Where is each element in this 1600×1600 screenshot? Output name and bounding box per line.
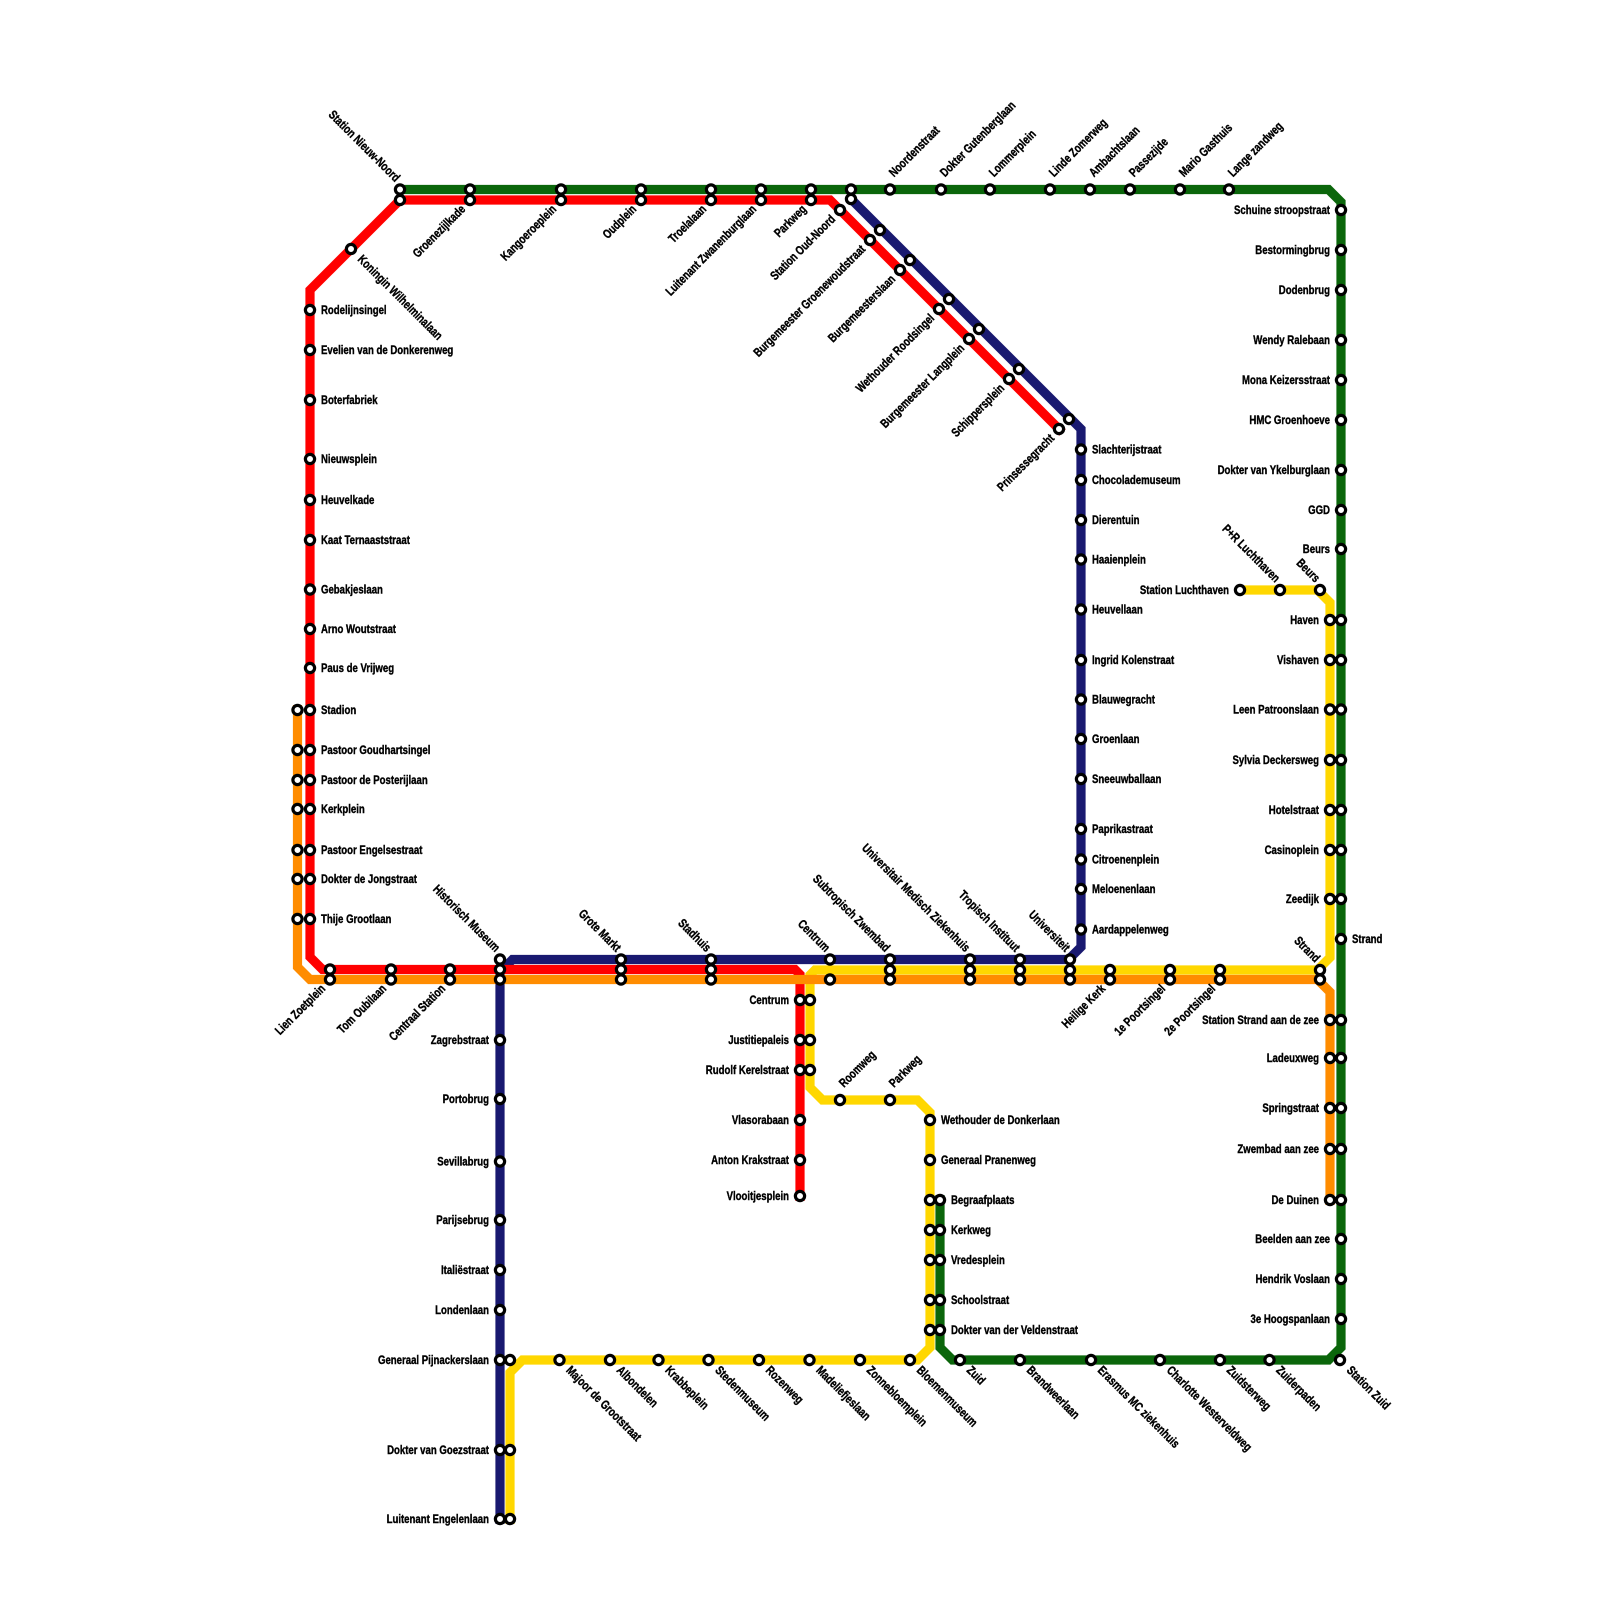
svg-text:Justitiepaleis: Justitiepaleis — [728, 1033, 789, 1047]
svg-text:Pastoor de Posterijlaan: Pastoor de Posterijlaan — [321, 773, 428, 787]
svg-text:Londenlaan: Londenlaan — [435, 1303, 489, 1317]
svg-text:Thije Grootlaan: Thije Grootlaan — [321, 912, 391, 926]
svg-text:Stadion: Stadion — [321, 703, 356, 717]
svg-text:Centrum: Centrum — [750, 993, 790, 1007]
svg-text:Vlasorabaan: Vlasorabaan — [732, 1113, 789, 1127]
svg-text:Sneeuwballaan: Sneeuwballaan — [1092, 772, 1161, 786]
svg-text:Groenlaan: Groenlaan — [1092, 732, 1140, 746]
svg-text:Sevillabrug: Sevillabrug — [437, 1155, 489, 1169]
svg-text:GGD: GGD — [1308, 503, 1330, 517]
svg-text:Zagrebstraat: Zagrebstraat — [431, 1033, 489, 1047]
svg-text:Leen Patroonslaan: Leen Patroonslaan — [1233, 703, 1319, 717]
svg-text:Ingrid Kolenstraat: Ingrid Kolenstraat — [1092, 653, 1174, 667]
svg-text:Generaal Pijnackerslaan: Generaal Pijnackerslaan — [378, 1353, 489, 1367]
svg-text:Kerkweg: Kerkweg — [951, 1223, 991, 1237]
svg-text:Begraafplaats: Begraafplaats — [951, 1193, 1015, 1207]
svg-text:Portobrug: Portobrug — [443, 1092, 489, 1106]
svg-text:Schuine stroopstraat: Schuine stroopstraat — [1234, 203, 1330, 217]
svg-text:Luitenant Engelenlaan: Luitenant Engelenlaan — [387, 1512, 489, 1526]
svg-text:Haven: Haven — [1290, 613, 1319, 627]
svg-text:Dokter van Goezstraat: Dokter van Goezstraat — [387, 1443, 489, 1457]
svg-text:Vredesplein: Vredesplein — [951, 1253, 1005, 1267]
svg-text:Blauwegracht: Blauwegracht — [1092, 693, 1155, 707]
svg-text:Dierentuin: Dierentuin — [1092, 513, 1140, 527]
svg-text:Heuvellaan: Heuvellaan — [1092, 603, 1143, 617]
svg-text:Casinoplein: Casinoplein — [1265, 843, 1319, 857]
svg-text:Kerkplein: Kerkplein — [321, 802, 365, 816]
svg-text:Dodenbrug: Dodenbrug — [1279, 283, 1330, 297]
svg-text:Sylvia Deckersweg: Sylvia Deckersweg — [1233, 753, 1320, 767]
svg-text:Anton Krakstraat: Anton Krakstraat — [711, 1153, 789, 1167]
svg-text:Meloenenlaan: Meloenenlaan — [1092, 882, 1156, 896]
svg-text:Station Luchthaven: Station Luchthaven — [1140, 583, 1229, 597]
svg-text:Pastoor Engelsestraat: Pastoor Engelsestraat — [321, 843, 422, 857]
svg-text:Aardappelenweg: Aardappelenweg — [1092, 923, 1169, 937]
svg-text:Paprikastraat: Paprikastraat — [1092, 822, 1153, 836]
svg-text:Zeedijk: Zeedijk — [1286, 892, 1319, 906]
svg-text:Vishaven: Vishaven — [1277, 653, 1319, 667]
svg-text:Dokter van Ykelburglaan: Dokter van Ykelburglaan — [1218, 463, 1330, 477]
svg-text:Paus de Vrijweg: Paus de Vrijweg — [321, 661, 394, 675]
svg-text:Ladeuxweg: Ladeuxweg — [1267, 1051, 1319, 1065]
svg-text:HMC Groenhoeve: HMC Groenhoeve — [1249, 413, 1330, 427]
svg-text:Beelden aan zee: Beelden aan zee — [1255, 1232, 1330, 1246]
svg-text:Strand: Strand — [1352, 932, 1382, 946]
svg-text:Mona Keizersstraat: Mona Keizersstraat — [1242, 373, 1330, 387]
svg-text:Generaal Pranenweg: Generaal Pranenweg — [941, 1153, 1036, 1167]
svg-text:Wethouder de Donkerlaan: Wethouder de Donkerlaan — [941, 1113, 1060, 1127]
svg-text:Hotelstraat: Hotelstraat — [1269, 803, 1319, 817]
svg-text:Hendrik Voslaan: Hendrik Voslaan — [1256, 1272, 1331, 1286]
svg-text:Nieuwsplein: Nieuwsplein — [321, 452, 377, 466]
svg-text:Rudolf Kerelstraat: Rudolf Kerelstraat — [706, 1063, 789, 1077]
svg-text:Arno Woutstraat: Arno Woutstraat — [321, 622, 396, 636]
svg-text:Bestormingbrug: Bestormingbrug — [1255, 243, 1330, 257]
svg-text:Haaienplein: Haaienplein — [1092, 553, 1146, 567]
svg-text:Rodelijnsingel: Rodelijnsingel — [321, 303, 387, 317]
svg-text:Springstraat: Springstraat — [1262, 1101, 1319, 1115]
svg-text:Schoolstraat: Schoolstraat — [951, 1293, 1009, 1307]
svg-text:Vlooitjesplein: Vlooitjesplein — [727, 1189, 789, 1203]
svg-text:Slachterijstraat: Slachterijstraat — [1092, 443, 1161, 457]
svg-text:Dokter van der Veldenstraat: Dokter van der Veldenstraat — [951, 1323, 1078, 1337]
svg-text:Gebakjeslaan: Gebakjeslaan — [321, 583, 383, 597]
svg-text:Parijsebrug: Parijsebrug — [436, 1213, 489, 1227]
svg-text:Evelien van de Donkerenweg: Evelien van de Donkerenweg — [321, 343, 453, 357]
svg-text:Station Strand aan de zee: Station Strand aan de zee — [1202, 1013, 1319, 1027]
svg-text:Italiëstraat: Italiëstraat — [441, 1263, 489, 1277]
svg-text:Citroenenplein: Citroenenplein — [1092, 853, 1159, 867]
svg-text:Boterfabriek: Boterfabriek — [321, 393, 378, 407]
svg-text:Beurs: Beurs — [1303, 542, 1330, 556]
svg-text:Kaat Ternaaststraat: Kaat Ternaaststraat — [321, 533, 410, 547]
svg-text:Dokter de Jongstraat: Dokter de Jongstraat — [321, 872, 417, 886]
svg-text:Zwembad aan zee: Zwembad aan zee — [1237, 1142, 1319, 1156]
svg-text:3e Hoogspanlaan: 3e Hoogspanlaan — [1251, 1312, 1331, 1326]
svg-text:Wendy Ralebaan: Wendy Ralebaan — [1253, 333, 1330, 347]
svg-text:Heuvelkade: Heuvelkade — [321, 493, 374, 507]
svg-text:De Duinen: De Duinen — [1272, 1193, 1320, 1207]
svg-text:Pastoor Goudhartsingel: Pastoor Goudhartsingel — [321, 743, 430, 757]
svg-text:Chocolademuseum: Chocolademuseum — [1092, 473, 1181, 487]
